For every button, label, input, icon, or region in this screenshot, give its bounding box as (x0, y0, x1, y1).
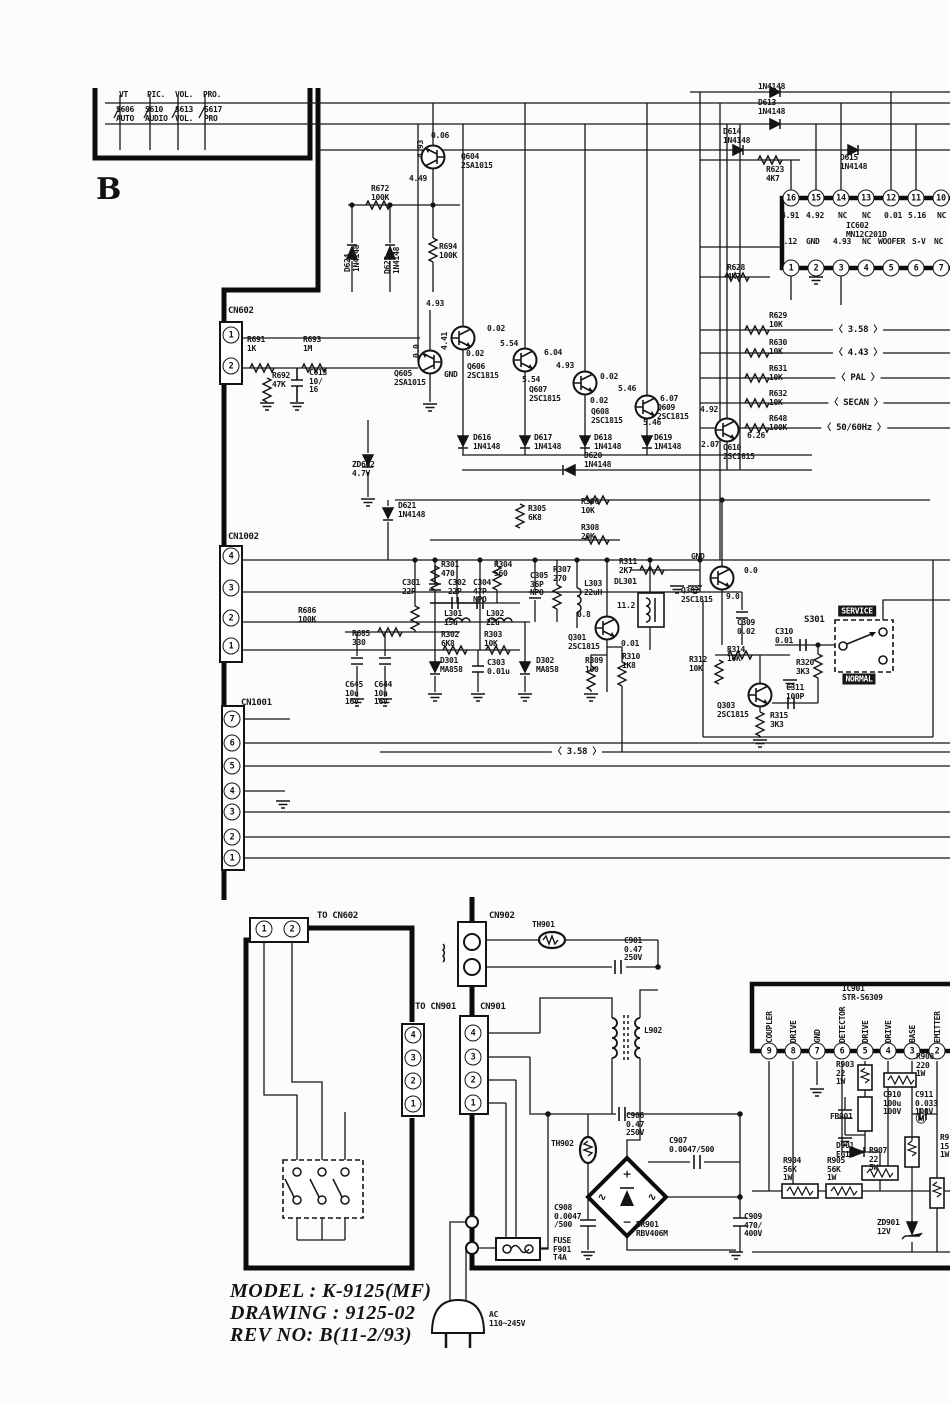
label-d614: D614 1N4148 (723, 128, 750, 145)
section-label: B (96, 172, 121, 207)
label-r307: R307 270 (553, 566, 571, 583)
label-r623: R623 4K7 (766, 166, 784, 183)
label-4.49: 4.49 (409, 175, 427, 184)
pin-4: 4 (223, 548, 240, 565)
label-coupler: COUPLER (766, 1011, 775, 1043)
label-d623: D623 1N4148 (384, 247, 401, 274)
label-detector: DETECTOR (839, 1007, 848, 1043)
label-r320: R320 3K3 (796, 659, 814, 676)
pin-4: 4 (405, 1027, 422, 1044)
label-6.04: 6.04 (544, 349, 562, 358)
label-q301: Q301 2SC1815 (568, 634, 600, 651)
label-q302: Q302 2SC1815 (681, 587, 713, 604)
pin-2: 2 (808, 260, 825, 277)
fuse-symbol (466, 1216, 540, 1260)
pin-4: 4 (465, 1025, 482, 1042)
pin-1: 1 (256, 921, 273, 938)
label-r648: R648 100K (769, 415, 787, 432)
pin-3: 3 (833, 260, 850, 277)
pin-13: 13 (858, 190, 875, 207)
label-nc: NC (862, 212, 871, 221)
label-r304: R304 560 (494, 561, 512, 578)
pin-6: 6 (834, 1043, 851, 1060)
label-s617: S617 PRO (204, 106, 222, 123)
label-q605: Q605 2SA1015 (394, 370, 426, 387)
label-ac: AC 110~245V (489, 1311, 525, 1328)
label-c644: C644 10u 16V (374, 681, 392, 707)
label-r685: R685 330 (352, 630, 370, 647)
label-drive: DRIVE (790, 1020, 799, 1043)
label-r694: R694 100K (439, 243, 457, 260)
label-: + (623, 1168, 632, 1181)
label-r314: R314 10K (727, 646, 745, 663)
pin-2: 2 (405, 1073, 422, 1090)
label-0.0: 0.0 (413, 344, 422, 358)
pin-1: 1 (405, 1096, 422, 1113)
label-4.93: 4.93 (417, 140, 426, 158)
label-q303: Q303 2SC1815 (717, 702, 749, 719)
label-pro.: PRO. (203, 91, 221, 100)
label-5.16: 5.16 (908, 212, 926, 221)
label-r306: R306 10K (581, 498, 599, 515)
label-0.02: 0.02 (487, 325, 505, 334)
schematic-page: VTPIC.VOL.PRO.S606 AUTOS610 AUDIOS613 VO… (0, 0, 950, 1403)
pin-15: 15 (808, 190, 825, 207)
label-r628: R628 4K7 (727, 264, 745, 281)
pin-4: 4 (224, 783, 241, 800)
label-cn902: CN902 (489, 912, 515, 921)
label-5.54: 5.54 (522, 376, 540, 385)
label-q610: Q610 2SC1815 (723, 444, 755, 461)
pin-3: 3 (223, 580, 240, 597)
label-4.41: 4.41 (441, 332, 450, 350)
label-r302: R302 6K8 (441, 631, 459, 648)
pin-12: 12 (883, 190, 900, 207)
pin-5: 5 (883, 260, 900, 277)
label-drive: DRIVE (885, 1020, 894, 1043)
label-2.07: 2.07 (701, 441, 719, 450)
label-r905: R905 56K 1W (827, 1157, 845, 1183)
label-c301: C301 22P (402, 579, 420, 596)
pin-7: 7 (809, 1043, 826, 1060)
label-6.26: 6.26 (747, 432, 765, 441)
label-fuse: FUSE F901 T4A (553, 1237, 571, 1263)
label-th902: TH902 (551, 1140, 574, 1149)
label-d617: D617 1N4148 (534, 434, 561, 451)
label-4.93: 4.93 (426, 300, 444, 309)
label-r303: R303 10K (484, 631, 502, 648)
label-c304: C304 47P NPO (473, 579, 491, 605)
label-0.06: 0.06 (431, 132, 449, 141)
label-r311: R311 2K7 (619, 558, 637, 575)
title-drawing: DRAWING : 9125-02 (230, 1302, 432, 1324)
label-4.92: 4.92 (806, 212, 824, 221)
label-gnd: GND (814, 1029, 823, 1043)
label-c303: C303 0.01u (487, 659, 510, 676)
label-r315: R315 3K3 (770, 712, 788, 729)
pin-2: 2 (284, 921, 301, 938)
label-5.12: 5.12 (779, 238, 797, 247)
label-normal: NORMAL (842, 674, 875, 685)
label-r309: R309 100 (585, 657, 603, 674)
signal-tag-SECAN: SECAN (828, 398, 883, 408)
label-9.0: 9.0 (726, 593, 740, 602)
label-r907: R907 22 5W (869, 1147, 887, 1173)
signal-tag-4.43: 4.43 (833, 348, 883, 358)
label-r310: R310 1K8 (622, 653, 640, 670)
label-woofer: WOOFER (878, 238, 905, 247)
label-0.01: 0.01 (884, 212, 902, 221)
label-c613: C613 10/ 16 (309, 369, 327, 395)
label-11.2: 11.2 (617, 602, 635, 611)
ac-plug-symbol (432, 1300, 484, 1348)
label-zd602: ZD602 4.7V (352, 461, 375, 478)
pin-2: 2 (223, 610, 240, 627)
pin-14: 14 (833, 190, 850, 207)
title-model: MODEL : K-9125(MF) (230, 1280, 432, 1302)
label-zd901: ZD901 12V (877, 1219, 900, 1236)
pin-2: 2 (465, 1072, 482, 1089)
label-r672: R672 100K (371, 185, 389, 202)
label-l303: L303 22uH (584, 580, 602, 597)
label-s606: S606 AUTO (116, 106, 134, 123)
label-r630: R630 10K (769, 339, 787, 356)
label-c908: C908 0.0047 /500 (554, 1204, 581, 1230)
pin-2: 2 (223, 358, 240, 375)
label-q604: Q604 2SA1015 (461, 153, 493, 170)
label-cn901: CN901 (480, 1003, 506, 1012)
label-cn1002: CN1002 (228, 533, 259, 542)
label-vol.: VOL. (175, 91, 193, 100)
label-s613: S613 VOL. (175, 106, 193, 123)
label-r908: R908 220 1W (916, 1053, 934, 1079)
pin-4: 4 (880, 1043, 897, 1060)
pin-9: 9 (761, 1043, 778, 1060)
label-5.46: 5.46 (618, 385, 636, 394)
label-0.02: 0.02 (600, 373, 618, 382)
pin-1: 1 (224, 850, 241, 867)
label-to: TO CN602 (317, 912, 358, 921)
label-r692: R692 47K (272, 372, 290, 389)
label-d621: D621 1N4148 (398, 502, 425, 519)
signal-tag-3.58: 3.58 (552, 747, 602, 757)
label-r903: R903 22 1W (836, 1061, 854, 1087)
label-0.02: 0.02 (590, 397, 608, 406)
label-c906: C906 0.47 250V (626, 1112, 644, 1138)
label-: ∿ (648, 1191, 657, 1204)
label-ic901: IC901 STR-S6309 (842, 985, 883, 1002)
label-gnd: GND (806, 238, 820, 247)
label-fb901: FB901 (830, 1113, 853, 1122)
label-pic.: PIC. (147, 91, 165, 100)
label-to: TO CN901 (415, 1003, 456, 1012)
label-base: BASE (909, 1025, 918, 1043)
label-c901: C901 0.47 250V (624, 937, 642, 963)
label-r691: R691 1K (247, 336, 265, 353)
label-c645: C645 10u 16V (345, 681, 363, 707)
label-r312: R312 10K (689, 656, 707, 673)
label-c910: C910 100u 100V (883, 1091, 901, 1117)
label-c309: C309 0.02 (737, 619, 755, 636)
label-c305: C305 36P NPO (530, 572, 548, 598)
pin-10: 10 (933, 190, 950, 207)
label-r305: R305 6K8 (528, 505, 546, 522)
pin-6: 6 (908, 260, 925, 277)
label-d302: D302 MA858 (536, 657, 559, 674)
label-cn602: CN602 (228, 307, 254, 316)
label-gnd: GND (444, 371, 458, 380)
label-l902: L902 (644, 1027, 662, 1036)
signal-tag-3.58: 3.58 (833, 325, 883, 335)
label-r9: R9 15 1W (940, 1134, 949, 1160)
label-0.0: 0.0 (744, 567, 758, 576)
label-r301: R301 470 (441, 561, 459, 578)
label-r629: R629 10K (769, 312, 787, 329)
label-4.93: 4.93 (556, 362, 574, 371)
label-1n4148: 1N4148 (758, 83, 785, 92)
label-drive: DRIVE (862, 1020, 871, 1043)
label-0.01: 0.01 (621, 640, 639, 649)
label-0.8: 0.8 (577, 611, 591, 620)
label-c907: C907 0.0047/500 (669, 1137, 714, 1154)
label-4.91: 4.91 (781, 212, 799, 221)
label-5.54: 5.54 (500, 340, 518, 349)
label-r904: R904 56K 1W (783, 1157, 801, 1183)
label-br901: BR901 RBV406M (636, 1221, 668, 1238)
label-th901: TH901 (532, 921, 555, 930)
pin-16: 16 (783, 190, 800, 207)
label-nc: NC (934, 238, 943, 247)
label-vt: VT (119, 91, 128, 100)
label-c310: C310 0.01 (775, 628, 793, 645)
pin-1: 1 (783, 260, 800, 277)
pin-4: 4 (858, 260, 875, 277)
pin-11: 11 (908, 190, 925, 207)
pin-8: 8 (785, 1043, 802, 1060)
pin-5: 5 (224, 758, 241, 775)
label-nc: NC (838, 212, 847, 221)
pin-6: 6 (224, 735, 241, 752)
label-d618: D618 1N4148 (594, 434, 621, 451)
label-4.92: 4.92 (700, 406, 718, 415)
label-c909: C909 470/ 400V (744, 1213, 762, 1239)
label-d615: D615 1N4148 (840, 154, 867, 171)
label-c302: C302 22P (448, 579, 466, 596)
label-r632: R632 10K (769, 390, 787, 407)
power-switch-symbol (283, 1160, 363, 1218)
pin-1: 1 (223, 638, 240, 655)
label-d624: D624 1N4148 (344, 245, 361, 272)
label-r686: R686 100K (298, 607, 316, 624)
label-service: SERVICE (838, 606, 876, 617)
label-s610: S610 AUDIO (145, 106, 168, 123)
pin-1: 1 (465, 1095, 482, 1112)
pin-7: 7 (933, 260, 950, 277)
label-cn1001: CN1001 (241, 699, 272, 708)
pin-5: 5 (857, 1043, 874, 1060)
label-: Ⓜ (916, 1110, 927, 1126)
label-: ∿ (598, 1191, 607, 1204)
label-r308: R308 20K (581, 524, 599, 541)
label-q609: Q609 2SC1815 (657, 404, 689, 421)
title-block: MODEL : K-9125(MF) DRAWING : 9125-02 REV… (230, 1280, 432, 1346)
label-d613: D613 1N4148 (758, 99, 785, 116)
label-: − (623, 1216, 632, 1229)
pin-3: 3 (224, 804, 241, 821)
boxed-resistor-symbols (782, 1065, 944, 1208)
label-0.02: 0.02 (466, 350, 484, 359)
capacitor-symbols (291, 368, 926, 1226)
label-d616: D616 1N4148 (473, 434, 500, 451)
label-r631: R631 10K (769, 365, 787, 382)
pin-1: 1 (223, 327, 240, 344)
title-rev: REV NO: B(11-2/93) (230, 1324, 432, 1346)
label-c311: C311 100P (786, 684, 804, 701)
label-s-v: S-V (912, 238, 926, 247)
label-l302: L302 22u (486, 610, 504, 627)
signal-tag-5060Hz: 50/60Hz (821, 423, 887, 433)
wires (105, 92, 950, 1300)
signal-tag-PAL: PAL (835, 373, 880, 383)
label-q606: Q606 2SC1815 (467, 363, 499, 380)
label-r693: R693 1M (303, 336, 321, 353)
label-nc: NC (937, 212, 946, 221)
pin-3: 3 (405, 1050, 422, 1067)
label-d619: D619 1N4148 (654, 434, 681, 451)
label-l301: L301 15u (444, 610, 462, 627)
label-d620: D620 1N4148 (584, 452, 611, 469)
label-4.93: 4.93 (833, 238, 851, 247)
label-s301: S301 (804, 616, 824, 625)
label-q608: Q608 2SC1815 (591, 408, 623, 425)
label-dl301: DL301 (614, 578, 637, 587)
pin-7: 7 (224, 711, 241, 728)
label-nc: NC (862, 238, 871, 247)
service-switch-symbol (835, 620, 893, 672)
pin-3: 3 (465, 1049, 482, 1066)
pin-2: 2 (224, 829, 241, 846)
label-d301: D301 MA858 (440, 657, 463, 674)
label-gnd: GND (691, 553, 705, 562)
label-emitter: EMITTER (934, 1011, 943, 1043)
label-q607: Q607 2SC1815 (529, 386, 561, 403)
